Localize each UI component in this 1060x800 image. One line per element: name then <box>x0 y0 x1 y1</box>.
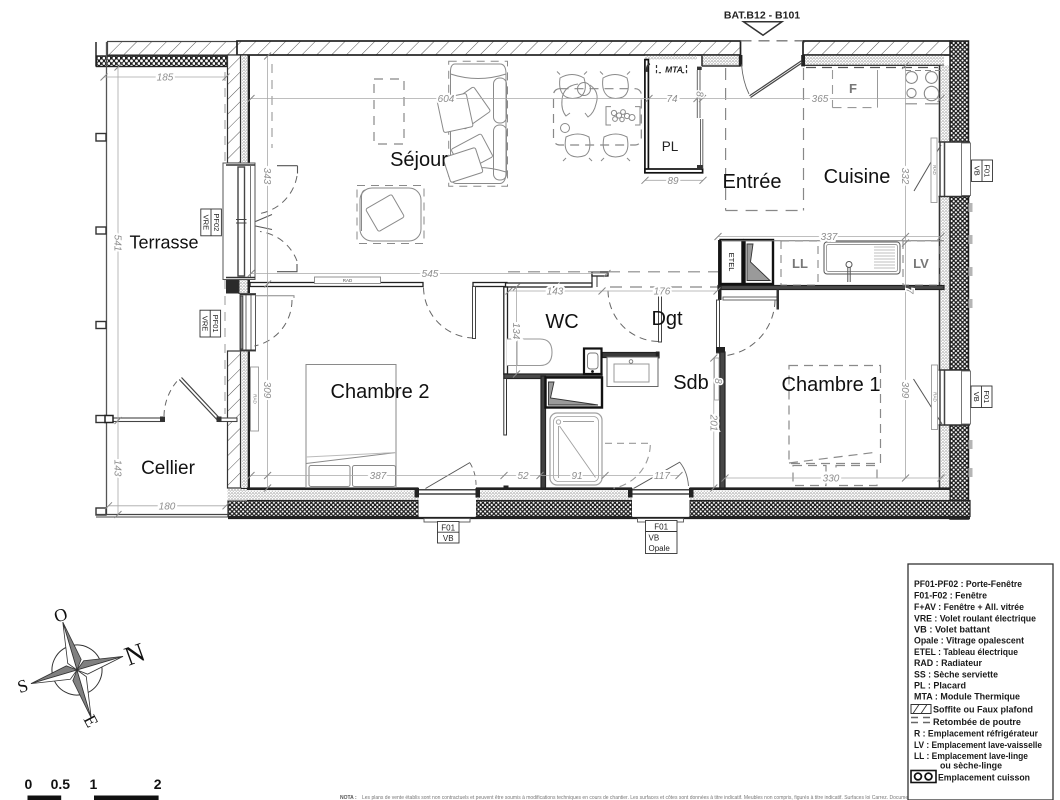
svg-text:Séjour: Séjour <box>390 149 448 171</box>
svg-text:PF02: PF02 <box>212 213 221 231</box>
svg-text:RAD : Radiateur: RAD : Radiateur <box>914 658 982 668</box>
svg-text:RAD: RAD <box>932 392 937 402</box>
svg-text:Emplacement cuisson: Emplacement cuisson <box>938 773 1030 783</box>
svg-text:BAT.B12 - B101: BAT.B12 - B101 <box>724 10 800 22</box>
svg-text:LV: LV <box>913 256 929 271</box>
svg-text:343: 343 <box>261 168 272 185</box>
svg-text:LL: LL <box>792 256 808 271</box>
svg-text:0: 0 <box>25 776 33 792</box>
svg-text:NOTA :: NOTA : <box>340 795 357 800</box>
svg-text:Cellier: Cellier <box>141 458 196 479</box>
svg-text:Sdb: Sdb <box>673 372 709 394</box>
svg-text:52: 52 <box>517 471 529 482</box>
svg-text:89: 89 <box>667 176 679 187</box>
svg-text:ETEL: ETEL <box>727 253 736 272</box>
svg-text:F01: F01 <box>982 390 991 403</box>
svg-text:VRE: VRE <box>202 215 211 230</box>
svg-text:F+AV : Fenêtre + All. vitrée: F+AV : Fenêtre + All. vitrée <box>914 602 1024 612</box>
svg-text:541: 541 <box>112 235 123 252</box>
svg-text:VB: VB <box>649 533 660 542</box>
svg-text:143: 143 <box>547 287 564 298</box>
svg-text:201: 201 <box>707 414 718 432</box>
svg-text:185: 185 <box>157 73 174 84</box>
svg-text:176: 176 <box>654 287 671 298</box>
svg-text:545: 545 <box>422 269 439 280</box>
svg-text:RAD: RAD <box>253 394 258 404</box>
svg-text:F01: F01 <box>983 164 992 177</box>
svg-text:309: 309 <box>899 382 910 399</box>
svg-text:PF01: PF01 <box>211 315 220 333</box>
svg-text:332: 332 <box>899 168 910 185</box>
svg-text:2: 2 <box>154 776 162 792</box>
svg-text:91: 91 <box>571 471 582 482</box>
svg-text:180: 180 <box>159 501 176 512</box>
svg-text:F01: F01 <box>441 523 455 532</box>
svg-text:Retombée de poutre: Retombée de poutre <box>933 717 1021 727</box>
svg-text:LV : Emplacement lave-vaissell: LV : Emplacement lave-vaisselle <box>914 740 1042 750</box>
svg-text:WC: WC <box>545 311 578 333</box>
svg-text:1: 1 <box>90 776 98 792</box>
svg-text:MTA : Module Thermique: MTA : Module Thermique <box>914 692 1020 702</box>
svg-text:ou sèche-linge: ou sèche-linge <box>940 760 1002 770</box>
svg-text:Opale : Vitrage opalescent: Opale : Vitrage opalescent <box>914 636 1024 646</box>
svg-text:Terrasse: Terrasse <box>129 233 198 253</box>
svg-text:Chambre 1: Chambre 1 <box>782 374 881 396</box>
svg-text:74: 74 <box>666 94 678 105</box>
svg-text:R : Emplacement réfrigérateur: R : Emplacement réfrigérateur <box>914 729 1038 739</box>
svg-text:Chambre 2: Chambre 2 <box>331 381 430 403</box>
svg-text:143: 143 <box>112 460 123 477</box>
svg-text:F01-F02 : Fenêtre: F01-F02 : Fenêtre <box>914 590 987 600</box>
svg-text:117: 117 <box>654 471 670 482</box>
svg-text:PL : Placard: PL : Placard <box>914 681 966 691</box>
svg-text:387: 387 <box>370 471 387 482</box>
svg-text:330: 330 <box>823 474 840 485</box>
svg-text:337: 337 <box>821 232 838 243</box>
svg-text:365: 365 <box>812 94 829 105</box>
svg-text:VB : Volet battant: VB : Volet battant <box>914 624 990 634</box>
svg-text:SS : Sèche serviette: SS : Sèche serviette <box>914 669 998 679</box>
svg-text:PL: PL <box>662 139 679 154</box>
svg-text:Dgt: Dgt <box>651 308 683 330</box>
svg-text:Soffite ou Faux plafond: Soffite ou Faux plafond <box>933 705 1033 715</box>
svg-text:Entrée: Entrée <box>723 171 782 193</box>
svg-text:8: 8 <box>694 91 705 97</box>
svg-text:VB: VB <box>973 166 982 176</box>
svg-text:PF01-PF02 : Porte-Fenêtre: PF01-PF02 : Porte-Fenêtre <box>914 579 1022 589</box>
svg-text:309: 309 <box>261 382 272 399</box>
svg-text:Cuisine: Cuisine <box>824 166 891 188</box>
svg-text:Les plans de vente établis son: Les plans de vente établis sont non cont… <box>362 795 989 800</box>
svg-text:RAD: RAD <box>343 278 353 283</box>
svg-text:VRE : Volet roulant électrique: VRE : Volet roulant électrique <box>914 613 1036 623</box>
svg-text:134: 134 <box>510 323 521 340</box>
svg-text:VB: VB <box>972 392 981 402</box>
svg-text:604: 604 <box>438 94 455 105</box>
svg-text:VRE: VRE <box>201 316 210 331</box>
svg-text:7: 7 <box>904 288 915 294</box>
svg-text:VB: VB <box>443 534 454 543</box>
svg-text:F: F <box>849 81 857 96</box>
svg-text:Opale: Opale <box>649 544 671 553</box>
svg-text:ETEL : Tableau électrique: ETEL : Tableau électrique <box>914 647 1018 657</box>
svg-text:8: 8 <box>712 378 723 384</box>
svg-text:MTA: MTA <box>665 65 683 75</box>
svg-text:0.5: 0.5 <box>51 776 71 792</box>
svg-text:F01: F01 <box>654 523 668 532</box>
svg-text:RAD: RAD <box>932 165 937 175</box>
